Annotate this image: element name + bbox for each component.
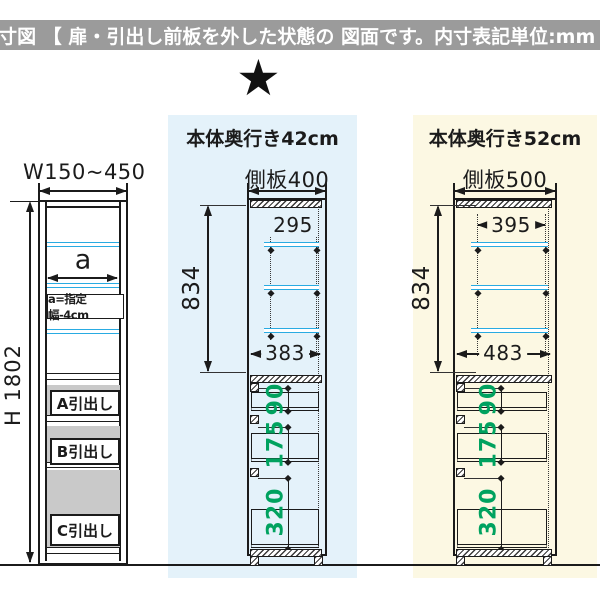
mid-shelf-depth-label: 295 xyxy=(269,213,317,237)
header-bar: 内寸図 【 扉・引出し前板を外した状態の 図面です。内寸表記単位:mm 】 xyxy=(0,20,600,50)
right-bottom-panel xyxy=(456,549,552,557)
right-483-arrow-left xyxy=(456,350,467,358)
left-drawer-a-label-box: A引出し xyxy=(50,390,120,416)
right-shelf-3 xyxy=(471,328,548,333)
right-top-panel xyxy=(456,200,552,208)
left-cabinet-top-panel xyxy=(46,206,119,208)
right-834-arrow-up xyxy=(434,205,442,216)
left-cabinet-height-label: H 1802 xyxy=(1,344,25,426)
left-inner-width-note: a=指定幅-4cm xyxy=(48,291,123,323)
right-inner-height-label: 834 xyxy=(409,265,435,310)
left-width-arrow-left xyxy=(39,187,50,195)
left-inner-width-arrow-left xyxy=(47,274,58,282)
right-width-arrow-right xyxy=(545,187,556,195)
left-drawer-c-label: C引出し xyxy=(57,520,113,541)
right-width-arrow-left xyxy=(454,187,465,195)
left-height-dimline xyxy=(29,204,31,562)
right-834-arrow-down xyxy=(434,361,442,372)
right-shelf-2 xyxy=(471,285,548,290)
diagram-canvas: 内寸図 【 扉・引出し前板を外した状態の 図面です。内寸表記単位:mm 】 ★ … xyxy=(0,0,600,600)
left-drawer-c-label-box: C引出し xyxy=(50,514,120,546)
right-drawer-box-1 xyxy=(457,392,547,411)
mid-inner-depth-label: 383 xyxy=(261,341,309,365)
right-drawer-box-2 xyxy=(457,433,547,462)
header-title: 内寸図 【 扉・引出し前板を外した状態の 図面です。内寸表記単位:mm 】 xyxy=(0,22,600,49)
right-leg-left xyxy=(456,556,465,566)
right-483-arrow-right xyxy=(540,350,551,358)
mid-shelf-2 xyxy=(264,285,319,290)
left-shelf-line-3 xyxy=(47,329,119,334)
left-inner-width-label: a xyxy=(75,245,92,276)
mid-drawer-height-90: 90 xyxy=(264,383,289,416)
mid-834-arrow-up xyxy=(204,205,212,216)
right-front-rail-2 xyxy=(456,415,465,424)
mid-834-arrow-down xyxy=(204,361,212,372)
depth52-title: 本体奥行き52cm xyxy=(413,124,597,151)
left-height-ext-top xyxy=(10,201,38,202)
right-834-dimline xyxy=(437,207,439,371)
left-inner-width-note-box: a=指定幅-4cm xyxy=(47,294,124,319)
left-shelf-line-2 xyxy=(47,283,119,288)
mid-width-arrow-right xyxy=(315,187,326,195)
mid-383-arrow-right xyxy=(310,350,321,358)
mid-834-dimline xyxy=(207,207,209,371)
left-inner-width-arrow-right xyxy=(107,274,118,282)
right-drawer-box-3 xyxy=(457,509,547,548)
mid-leg-right xyxy=(314,556,323,566)
star-icon: ★ xyxy=(236,52,281,104)
right-drawer-height-90: 90 xyxy=(477,383,502,416)
mid-leg-left xyxy=(250,556,259,566)
mid-bottom-panel xyxy=(250,549,322,557)
right-drawer-height-175: 175 xyxy=(477,420,502,469)
mid-top-panel xyxy=(250,200,322,208)
left-width-arrow-right xyxy=(116,187,127,195)
right-leg-right xyxy=(543,556,552,566)
left-drawer-b-label: B引出し xyxy=(57,441,113,462)
left-cabinet-width-label: W150~450 xyxy=(23,160,143,184)
left-height-arrow-down xyxy=(26,552,34,563)
right-395-arrow-right xyxy=(535,221,546,229)
depth42-title: 本体奥行き42cm xyxy=(168,124,357,151)
mid-front-rail-2 xyxy=(250,415,259,424)
mid-width-arrow-left xyxy=(248,187,259,195)
right-drawer-height-320: 320 xyxy=(477,488,502,537)
left-drawer-b-label-box: B引出し xyxy=(50,438,120,465)
mid-front-rail-3 xyxy=(250,468,259,477)
mid-drawer-height-320: 320 xyxy=(264,488,289,537)
mid-shelf-1 xyxy=(264,242,319,247)
right-inner-depth-label: 483 xyxy=(479,341,527,365)
mid-383-arrow-left xyxy=(250,350,261,358)
right-divider-panel xyxy=(456,375,552,383)
right-834-ext-bottom xyxy=(430,372,476,373)
right-shelf-1 xyxy=(471,242,548,247)
right-dim320-ext xyxy=(464,478,502,479)
mid-834-ext-bottom xyxy=(200,372,246,373)
left-drawer-a-label: A引出し xyxy=(57,393,114,414)
mid-drawer-height-175: 175 xyxy=(264,420,289,469)
left-height-arrow-up xyxy=(26,201,34,212)
right-shelf-depth-label: 395 xyxy=(487,213,535,237)
left-width-dimline xyxy=(40,190,126,192)
left-fixed-shelf-bottom xyxy=(47,547,119,554)
right-front-rail-3 xyxy=(456,468,465,477)
mid-shelf-3 xyxy=(264,328,319,333)
left-fixed-shelf-2 xyxy=(47,415,119,422)
left-fixed-shelf-1 xyxy=(47,373,119,380)
right-width-dimline xyxy=(455,190,555,192)
mid-inner-height-label: 834 xyxy=(179,265,205,310)
mid-width-dimline xyxy=(249,190,325,192)
